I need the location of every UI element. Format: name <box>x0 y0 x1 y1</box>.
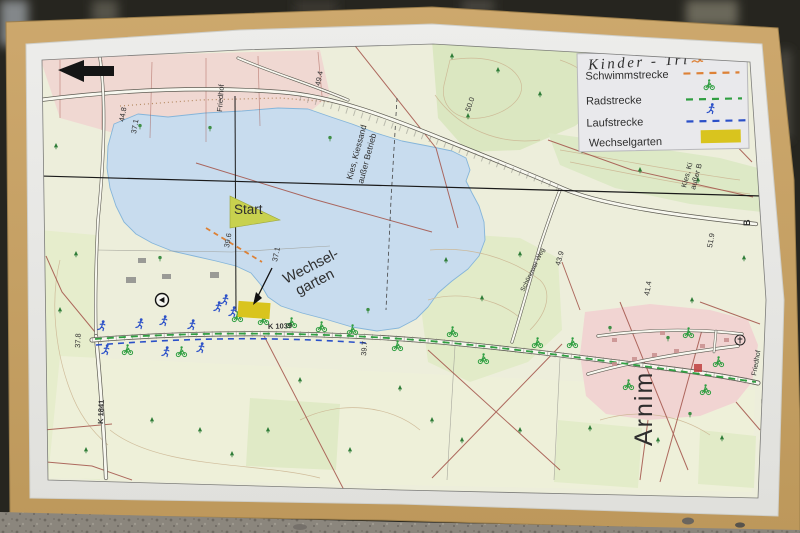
map-content: Start Wechsel- garten K 1039 K 1841 Schö… <box>30 34 780 504</box>
legend-wechselgarten-swatch <box>701 129 741 143</box>
legend-item-radstrecke: Radstrecke <box>586 94 642 107</box>
legend-item-schwimmstrecke: Schwimmstrecke <box>585 69 668 83</box>
elevation-label: 37.8 <box>73 333 83 348</box>
viewpoint-symbol <box>156 294 169 307</box>
stone <box>682 518 694 525</box>
b-mark-1: B <box>742 219 752 226</box>
legend-item-wechselgarten: Wechselgarten <box>589 136 662 150</box>
hydrant-marker <box>694 364 702 372</box>
field-patch <box>246 398 340 470</box>
legend: Kinder - Tri Schwimmstrecke Radstrecke L… <box>577 50 749 152</box>
start-label: Start <box>234 202 263 217</box>
stone <box>735 522 745 527</box>
elevation-label: 39.7 <box>359 341 369 356</box>
photo-of-triathlon-course-map: Start Wechsel- garten K 1039 K 1841 Schö… <box>0 0 800 533</box>
stone <box>293 524 307 530</box>
road-label-k1841: K 1841 <box>96 400 106 424</box>
village-label-arnim: Arnim <box>630 371 658 446</box>
field-patch <box>554 420 642 488</box>
legend-item-laufstrecke: Laufstrecke <box>586 116 643 129</box>
map-photo-canvas: Start Wechsel- garten K 1039 K 1841 Schö… <box>0 0 800 533</box>
road-label-k1039: K 1039 <box>268 321 292 331</box>
field-patch <box>698 430 756 488</box>
